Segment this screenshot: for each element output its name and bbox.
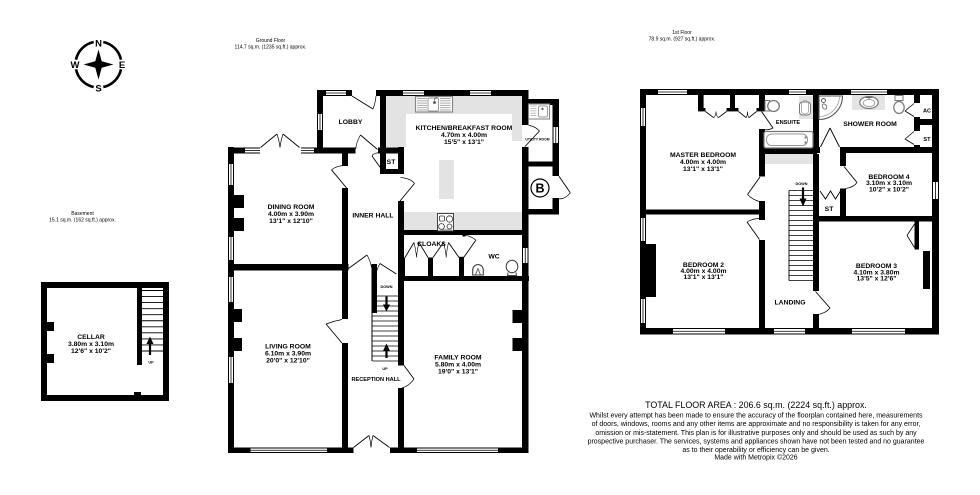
svg-text:DOWN: DOWN	[795, 182, 807, 186]
svg-text:15.1 sq.m. (162 sq.ft.) approx: 15.1 sq.m. (162 sq.ft.) approx.	[49, 218, 116, 224]
svg-text:FAMILY ROOM: FAMILY ROOM	[434, 355, 482, 362]
svg-text:Made with Metropix ©2026: Made with Metropix ©2026	[714, 454, 797, 462]
svg-text:Basement: Basement	[71, 211, 94, 217]
svg-text:ST: ST	[387, 159, 397, 166]
svg-text:ST: ST	[825, 206, 835, 213]
svg-text:4.00m x 4.00m: 4.00m x 4.00m	[680, 159, 726, 166]
svg-text:78.9 sq.m. (927 sq.ft.) approx: 78.9 sq.m. (927 sq.ft.) approx.	[649, 37, 716, 43]
svg-text:1st Floor: 1st Floor	[672, 30, 692, 36]
svg-text:12'6" x 10'2": 12'6" x 10'2"	[71, 348, 111, 355]
svg-text:4.70m x 4.00m: 4.70m x 4.00m	[441, 132, 487, 139]
svg-text:E: E	[119, 60, 125, 71]
svg-text:N: N	[95, 39, 102, 50]
svg-text:13'5" x 12'6": 13'5" x 12'6"	[857, 276, 897, 283]
svg-text:B: B	[535, 182, 544, 196]
svg-text:ENSUITE: ENSUITE	[776, 120, 801, 126]
svg-text:omission or mis-statement. Thi: omission or mis-statement. This plan is …	[595, 430, 917, 437]
svg-text:3.80m x 3.10m: 3.80m x 3.10m	[68, 341, 114, 348]
svg-text:Whilst every attempt has been: Whilst every attempt has been made to en…	[589, 413, 923, 420]
svg-text:CELLAR: CELLAR	[77, 334, 105, 341]
svg-text:INNER HALL: INNER HALL	[352, 213, 393, 220]
svg-text:LANDING: LANDING	[775, 300, 806, 307]
svg-text:6.10m x 3.90m: 6.10m x 3.90m	[265, 351, 311, 358]
svg-text:of doors, windows, rooms and a: of doors, windows, rooms and any other i…	[592, 421, 921, 428]
svg-text:RECEPTION HALL: RECEPTION HALL	[351, 377, 401, 383]
svg-text:Ground Floor: Ground Floor	[256, 38, 286, 44]
svg-text:LIVING ROOM: LIVING ROOM	[265, 344, 311, 351]
svg-text:19'0" x 13'1": 19'0" x 13'1"	[438, 369, 478, 376]
svg-text:DINING ROOM: DINING ROOM	[268, 204, 315, 211]
svg-text:W: W	[71, 60, 80, 71]
svg-text:prospective purchaser. The ser: prospective purchaser. The services, sys…	[588, 438, 925, 445]
svg-text:UTILITY ROOM: UTILITY ROOM	[525, 138, 549, 142]
svg-text:TOTAL FLOOR AREA : 206.6 sq.m.: TOTAL FLOOR AREA : 206.6 sq.m. (2224 sq.…	[645, 400, 867, 410]
svg-text:SHOWER ROOM: SHOWER ROOM	[843, 121, 897, 128]
svg-text:WC: WC	[488, 254, 499, 261]
svg-text:ST: ST	[923, 137, 931, 143]
svg-text:S: S	[95, 84, 101, 95]
svg-text:13'1" x 12'10": 13'1" x 12'10"	[269, 218, 313, 225]
svg-text:LOBBY: LOBBY	[339, 119, 363, 126]
svg-text:MASTER BEDROOM: MASTER BEDROOM	[670, 152, 736, 159]
svg-text:13'1" x 13'1": 13'1" x 13'1"	[684, 274, 724, 281]
svg-text:as to their operability or eff: as to their operability or efficiency ca…	[682, 447, 829, 454]
svg-text:13'1" x 13'1": 13'1" x 13'1"	[683, 166, 723, 173]
svg-text:UP: UP	[148, 361, 154, 365]
svg-text:10'2" x 10'2": 10'2" x 10'2"	[869, 186, 909, 193]
svg-text:4.00m x 3.90m: 4.00m x 3.90m	[268, 211, 314, 218]
svg-text:114.7 sq.m. (1235 sq.ft.) appr: 114.7 sq.m. (1235 sq.ft.) approx.	[235, 45, 307, 51]
svg-text:DOWN: DOWN	[380, 285, 392, 289]
svg-text:5.80m x 4.00m: 5.80m x 4.00m	[435, 362, 481, 369]
svg-text:20'0" x 12'10": 20'0" x 12'10"	[266, 358, 310, 365]
svg-text:AC: AC	[923, 109, 931, 115]
svg-text:KITCHEN/BREAKFAST ROOM: KITCHEN/BREAKFAST ROOM	[416, 125, 513, 132]
svg-text:15'5" x 13'1": 15'5" x 13'1"	[444, 139, 484, 146]
svg-text:UP: UP	[382, 367, 388, 371]
svg-text:CLOAKS: CLOAKS	[417, 241, 446, 248]
